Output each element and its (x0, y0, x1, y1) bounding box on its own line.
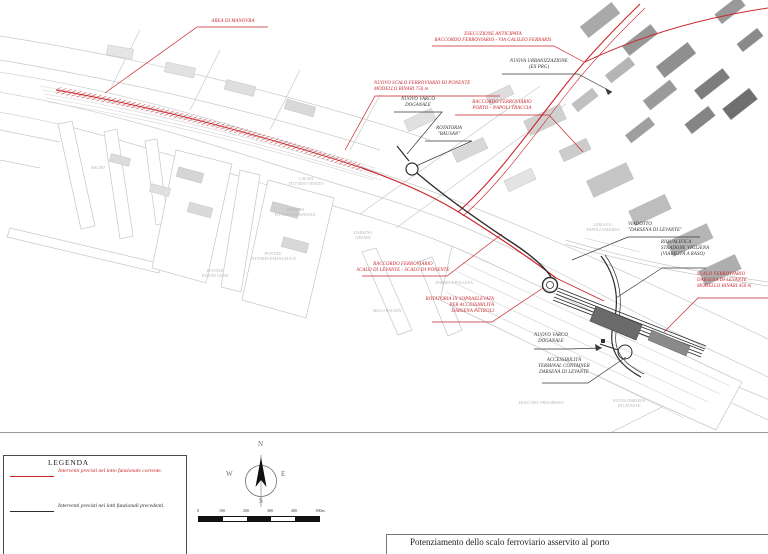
scale-bar-segment (295, 517, 319, 521)
compass-west-label: W (226, 470, 233, 478)
scale-tick-200: 200 (243, 508, 249, 513)
title-block-divider (386, 534, 387, 554)
scale-tick-100: 100 (219, 508, 225, 513)
compass-north-label: N (258, 440, 263, 448)
legend-item-previous: Interventi previsti nei lotti funzionali… (58, 503, 178, 510)
legend-title: LEGENDA (48, 458, 89, 467)
scale-bar-segment (223, 517, 247, 521)
compass-rose-icon (243, 449, 279, 513)
legend-box: LEGENDA Interventi previsti nel lotto fu… (3, 455, 187, 554)
scale-bar-segment (271, 517, 295, 521)
sheet-title: Potenziamento dello scalo ferroviario as… (410, 537, 609, 547)
scale-bar-segment (247, 517, 271, 521)
map-area: AREA DI MANOVRA ESECUZIONE ANTICIPATA RA… (0, 0, 768, 432)
plan-sheet: AREA DI MANOVRA ESECUZIONE ANTICIPATA RA… (0, 0, 768, 554)
scale-tick-0: 0 (197, 508, 199, 513)
scale-bar (198, 516, 320, 522)
scale-tick-500: 500m (315, 508, 324, 513)
legend-item-current: Interventi previsti nel lotto funzionale… (58, 468, 178, 475)
port-plan-drawing (0, 0, 768, 432)
legend-swatch-current (10, 476, 54, 477)
compass-east-label: E (281, 470, 285, 478)
scale-tick-300: 300 (267, 508, 273, 513)
title-block-rule (386, 534, 768, 535)
scale-bar-segment (199, 517, 223, 521)
legend-swatch-previous (10, 511, 54, 512)
scale-tick-400: 400 (291, 508, 297, 513)
bottom-panel: LEGENDA Interventi previsti nel lotto fu… (0, 432, 768, 554)
